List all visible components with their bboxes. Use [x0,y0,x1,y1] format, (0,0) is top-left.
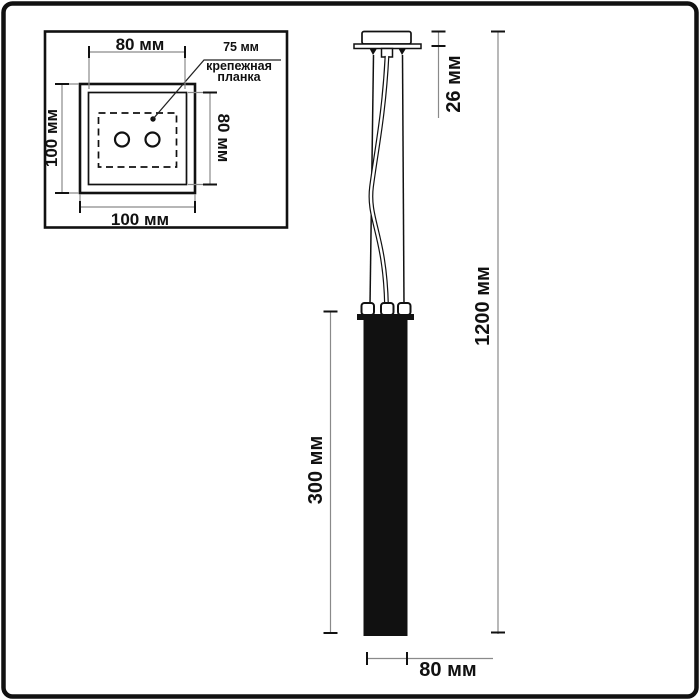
gland-left [362,303,375,315]
inset-top-view [45,32,287,228]
lamp-dimension-diagram: 80 мм 100 мм 80 мм 100 мм 75 мм крепежна… [0,0,700,700]
diagram-linework [0,0,700,700]
suspension-cable-right [403,55,405,305]
tube-top-rim [357,314,414,320]
main-dimension-lines [331,32,499,659]
main-front-view [324,32,506,666]
gland-center [381,303,394,315]
cable-grip-left [370,49,378,56]
gland-right [398,303,411,315]
cable-grip-right [399,49,407,56]
main-dimension-ticks [324,32,506,666]
cord-strain-relief [382,49,393,58]
tube-body [364,320,408,637]
inset-border [45,32,287,228]
canopy-body [362,32,411,45]
